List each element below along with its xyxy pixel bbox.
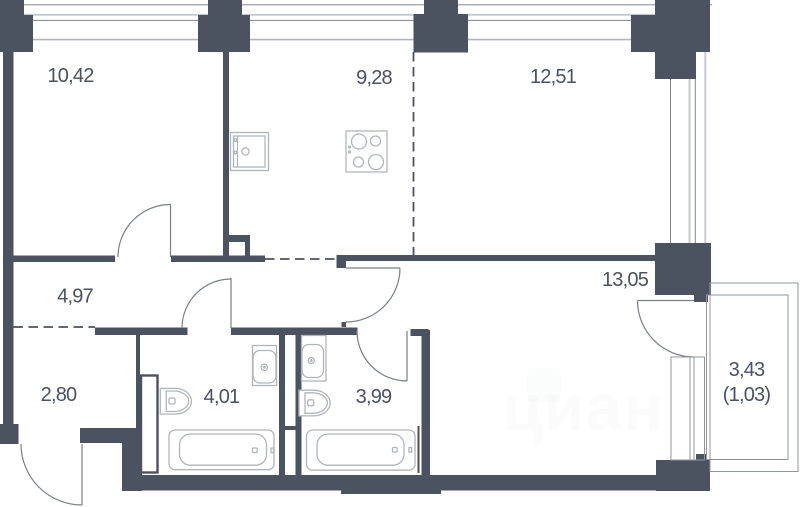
svg-text:13,05: 13,05 [602,269,649,291]
svg-text:12,51: 12,51 [530,66,577,88]
svg-text:3,43: 3,43 [729,359,765,381]
svg-text:9,28: 9,28 [356,67,392,89]
svg-text:10,42: 10,42 [47,65,94,87]
svg-text:циан: циан [502,370,664,444]
svg-text:3,99: 3,99 [356,386,392,408]
svg-text:2,80: 2,80 [41,384,77,406]
svg-text:4,01: 4,01 [204,386,240,408]
svg-text:(1,03): (1,03) [723,384,771,406]
svg-text:4,97: 4,97 [57,286,93,308]
